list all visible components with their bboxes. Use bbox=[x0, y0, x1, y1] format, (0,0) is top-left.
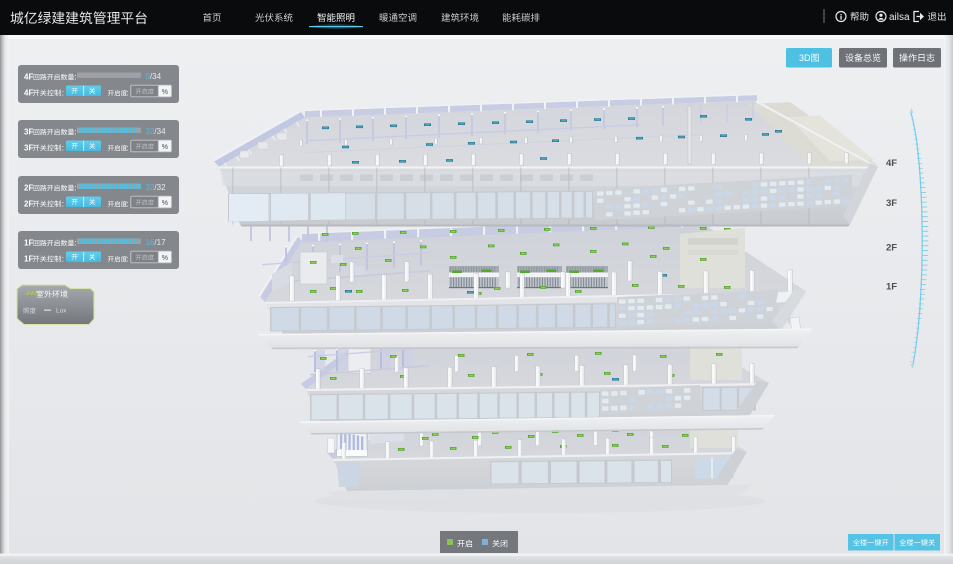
svg-text::: : bbox=[62, 144, 64, 153]
svg-text:1F: 1F bbox=[24, 239, 33, 248]
svg-text:3F: 3F bbox=[886, 198, 897, 209]
svg-text:4F: 4F bbox=[24, 73, 33, 82]
svg-text:32/34: 32/34 bbox=[146, 127, 167, 136]
svg-text:ailsa: ailsa bbox=[889, 12, 910, 23]
svg-text:2F: 2F bbox=[886, 243, 897, 254]
svg-text::: : bbox=[74, 239, 76, 248]
svg-text:1F: 1F bbox=[24, 255, 33, 264]
svg-text:%: % bbox=[162, 144, 168, 151]
svg-text:4F: 4F bbox=[886, 158, 897, 169]
svg-text:%: % bbox=[162, 89, 168, 96]
svg-text:3F: 3F bbox=[24, 144, 33, 153]
svg-text::: : bbox=[127, 144, 129, 153]
svg-text:%: % bbox=[162, 200, 168, 207]
svg-text::: : bbox=[127, 255, 129, 264]
svg-text:2F: 2F bbox=[24, 184, 33, 193]
svg-text::: : bbox=[62, 89, 64, 98]
svg-text:0/34: 0/34 bbox=[146, 72, 162, 81]
svg-text:3D: 3D bbox=[799, 53, 811, 63]
svg-text:2F: 2F bbox=[24, 200, 33, 209]
svg-text::: : bbox=[62, 255, 64, 264]
svg-text::: : bbox=[74, 73, 76, 82]
svg-text:3F: 3F bbox=[24, 128, 33, 137]
svg-text:4F: 4F bbox=[24, 89, 33, 98]
svg-text::: : bbox=[74, 128, 76, 137]
svg-text::: : bbox=[74, 184, 76, 193]
svg-text::: : bbox=[62, 200, 64, 209]
svg-text:1F: 1F bbox=[886, 282, 897, 293]
svg-text:32/32: 32/32 bbox=[146, 183, 167, 192]
svg-text:Lux: Lux bbox=[56, 308, 67, 315]
svg-text::: : bbox=[127, 89, 129, 98]
svg-text::: : bbox=[127, 200, 129, 209]
svg-text:%: % bbox=[162, 255, 168, 262]
svg-text:16/17: 16/17 bbox=[146, 238, 167, 247]
